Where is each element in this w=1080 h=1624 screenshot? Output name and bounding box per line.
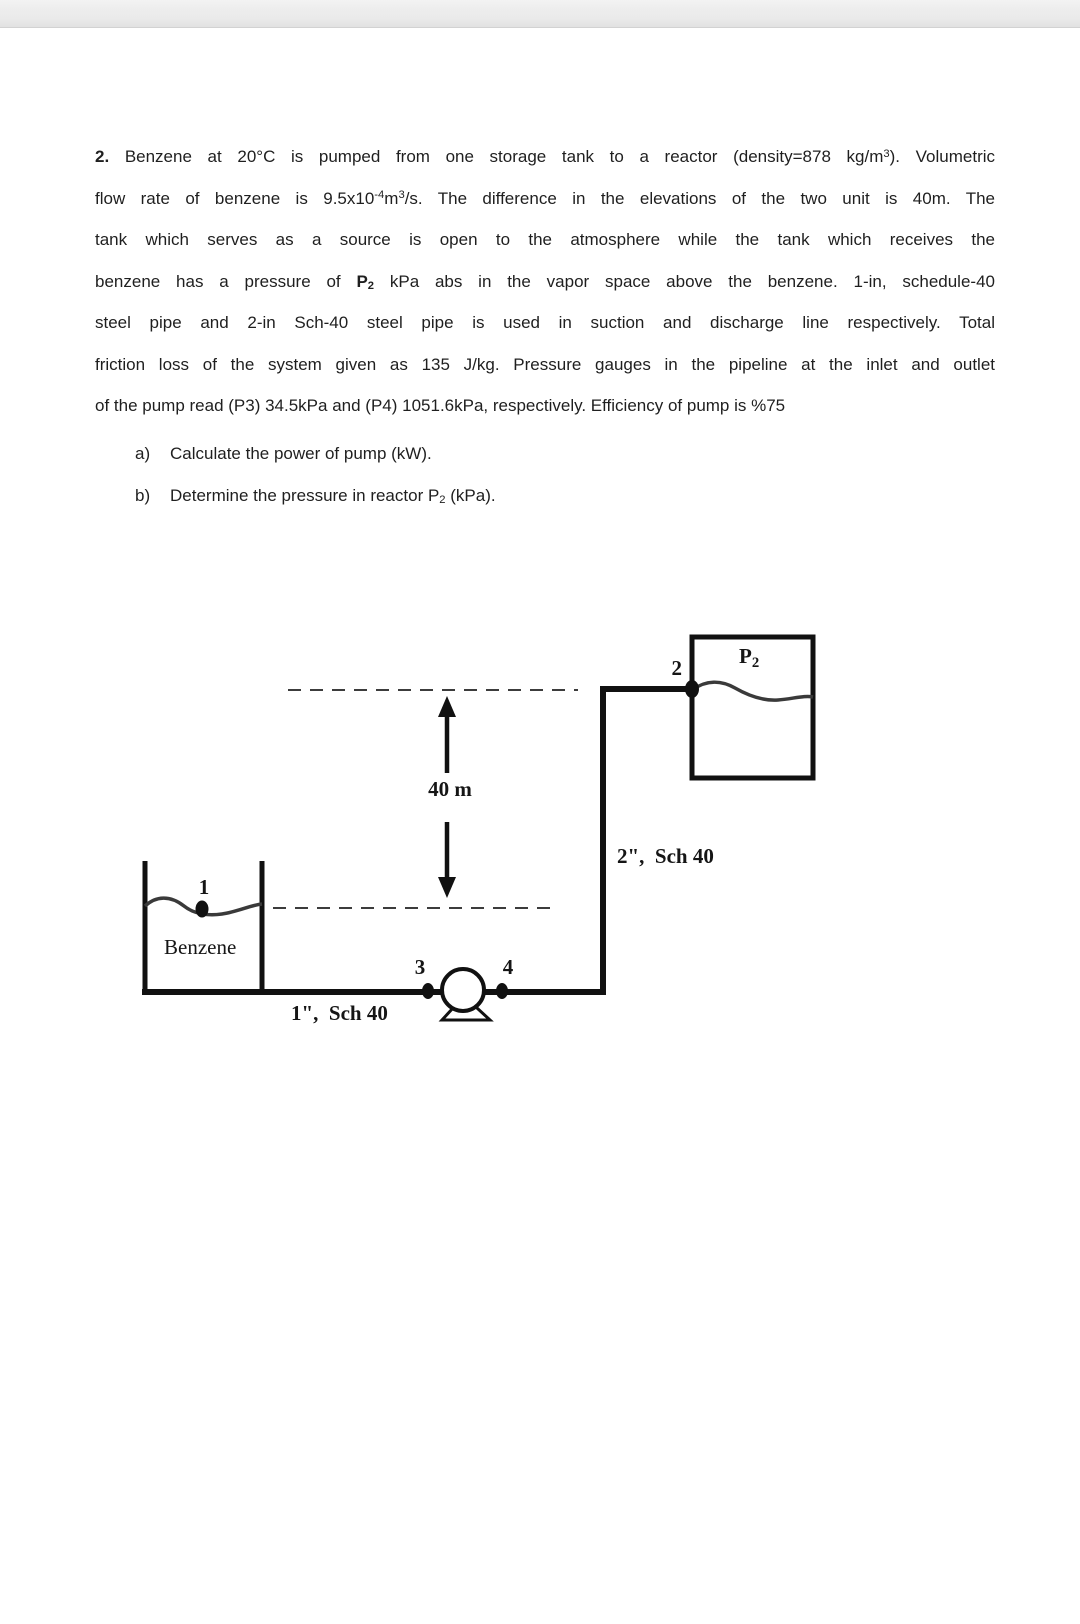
point-3-label: 3 bbox=[407, 957, 433, 978]
elevation-label: 40 m bbox=[405, 779, 495, 800]
elevation-arrow-up-head bbox=[438, 696, 456, 717]
benzene-label: Benzene bbox=[164, 937, 236, 958]
point-2-label: 2 bbox=[652, 658, 682, 679]
p2-symbol: P bbox=[739, 644, 752, 668]
elevation-arrow-down-head bbox=[438, 877, 456, 898]
p2-subscript: 2 bbox=[752, 655, 759, 671]
point-4-label: 4 bbox=[495, 957, 521, 978]
discharge-riser-pipe bbox=[603, 689, 692, 995]
suction-pipe-label: 1", Sch 40 bbox=[291, 1003, 388, 1024]
document-page: 2. Benzene at 20°C is pumped from one st… bbox=[0, 0, 1080, 1624]
process-diagram bbox=[0, 0, 1080, 1624]
point-4-dot bbox=[496, 983, 508, 999]
discharge-pipe-label: 2", Sch 40 bbox=[617, 846, 714, 867]
pump-circle bbox=[442, 969, 484, 1011]
point-1-label: 1 bbox=[192, 877, 216, 898]
reactor-pressure-label: P2 bbox=[739, 646, 759, 667]
point-3-dot bbox=[422, 983, 434, 999]
point-2-dot bbox=[685, 680, 699, 698]
point-1-dot bbox=[196, 901, 209, 918]
